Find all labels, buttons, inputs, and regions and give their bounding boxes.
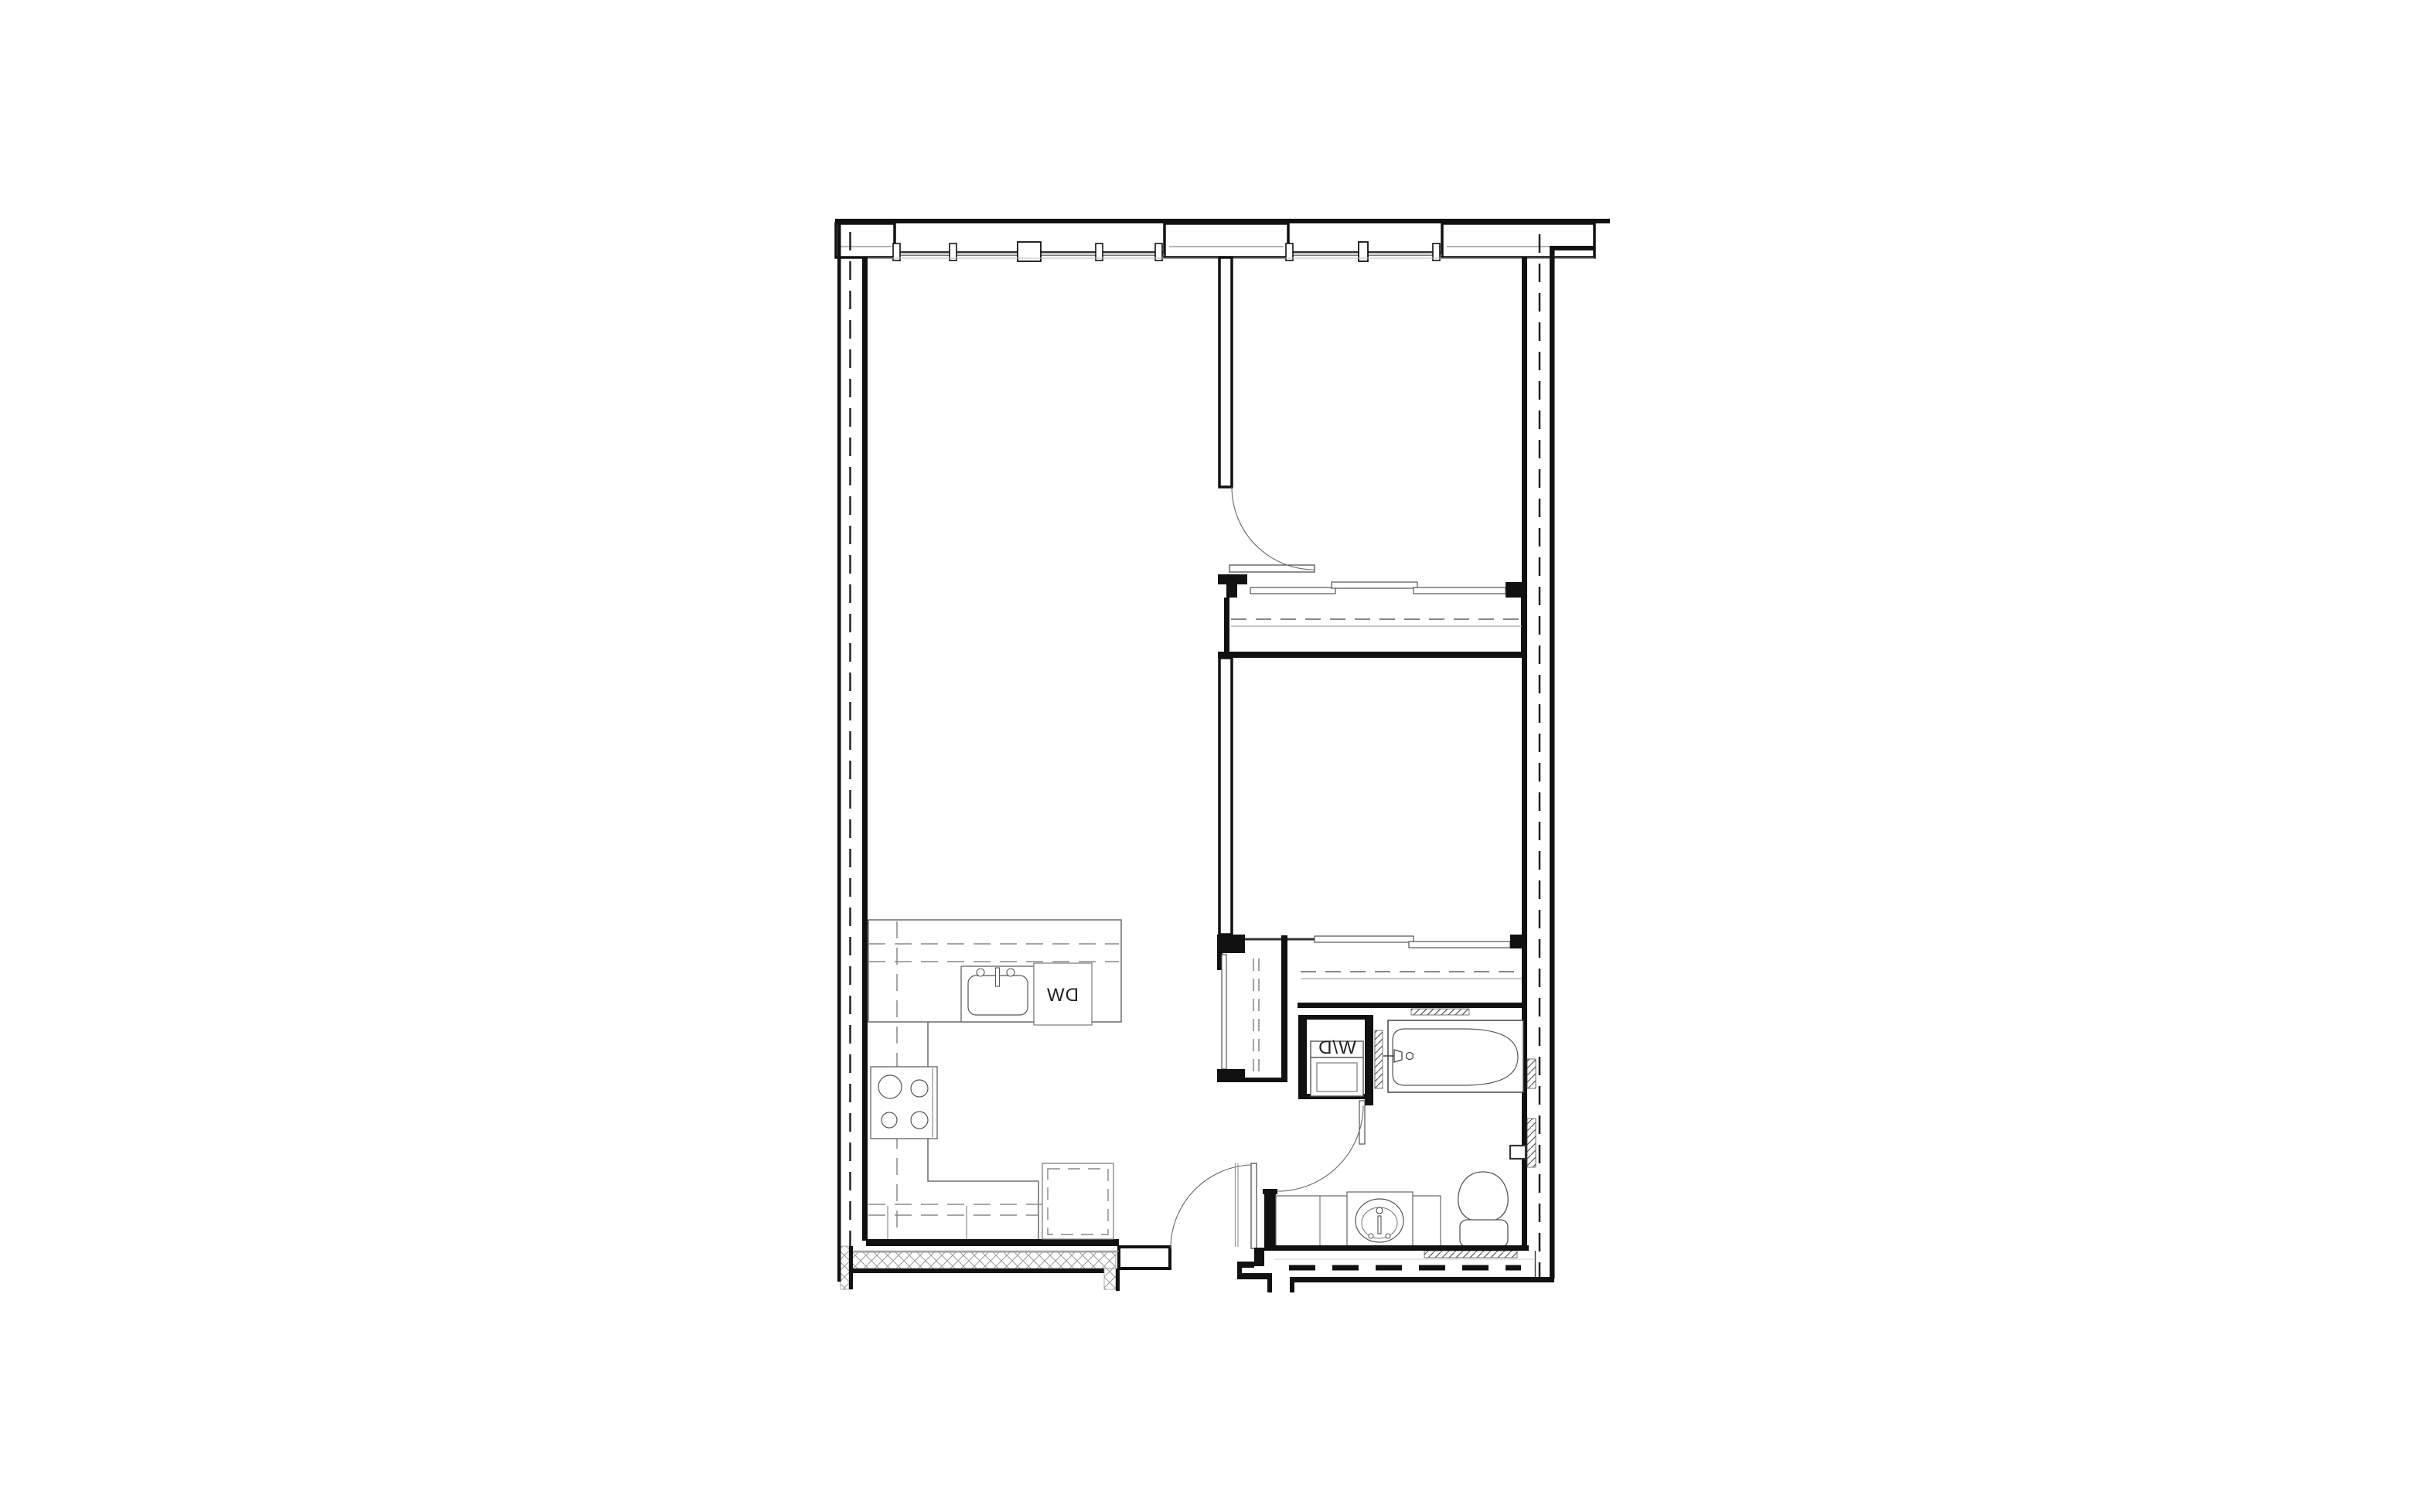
sliding-door-panel xyxy=(1409,942,1510,948)
sliding-door-panel xyxy=(1250,587,1335,594)
wall-hatch xyxy=(1375,1030,1383,1088)
wall-hatch xyxy=(1424,1251,1517,1258)
door-swing-arc-icon xyxy=(1171,1165,1251,1248)
washer-dryer-closet: W/D xyxy=(1298,1015,1373,1105)
bottom-corridor-wall-left xyxy=(837,1239,1120,1291)
stove-burners-icon xyxy=(871,1067,937,1139)
sliding-door-panel xyxy=(1414,587,1506,594)
sliding-door-panel xyxy=(1315,936,1414,942)
left-demising-wall xyxy=(837,223,868,1282)
right-demising-wall xyxy=(1522,234,1555,1279)
bedroom-door xyxy=(1229,487,1315,572)
entry-closet xyxy=(1217,935,1287,1082)
bedroom-hall-wall xyxy=(1219,658,1232,935)
dishwasher-label: DW xyxy=(1046,985,1079,1006)
closet-door-panel xyxy=(1222,955,1226,1069)
stacked-washer-dryer-icon: W/D xyxy=(1311,1037,1363,1096)
entry-jamb-wall xyxy=(1119,1247,1170,1269)
bedroom-closet xyxy=(1218,574,1527,658)
tub-faucet-icon xyxy=(1394,1050,1402,1062)
bottom-corridor-wall-right xyxy=(1289,1268,1554,1292)
wall-hatch xyxy=(1411,1009,1469,1015)
door-swing-arc-icon xyxy=(1277,1105,1363,1191)
wall-pier-left xyxy=(836,223,895,257)
wall-hatch xyxy=(1527,1119,1536,1167)
wall-pier-right xyxy=(1442,223,1594,257)
entry-step-wall xyxy=(1237,1248,1272,1292)
toilet-icon xyxy=(1458,1172,1508,1247)
washer-dryer-label: W/D xyxy=(1318,1037,1356,1058)
kitchen-sink-icon xyxy=(961,966,1034,1022)
dishwasher: DW xyxy=(1034,963,1092,1025)
top-exterior-wall xyxy=(835,219,1610,261)
bathtub-icon xyxy=(1383,1020,1523,1092)
entry-door xyxy=(1171,1163,1257,1248)
bathroom-sink-icon xyxy=(1356,1199,1403,1242)
door-leaf xyxy=(1359,1101,1365,1144)
wall-hatch xyxy=(1527,1059,1536,1088)
door-leaf xyxy=(1251,1163,1257,1248)
entry xyxy=(1119,1163,1272,1292)
sliding-door-panel xyxy=(1332,582,1417,588)
insulation-hatch-band xyxy=(851,1252,1116,1269)
sink-faucet-icon xyxy=(996,968,1000,986)
floor-plan-page: W/D xyxy=(0,0,2411,1512)
wall-pier-center xyxy=(1165,223,1288,257)
bathroom-door xyxy=(1277,1101,1365,1191)
refrigerator-icon xyxy=(1042,1163,1113,1239)
neighbor-wall-stub xyxy=(1550,246,1594,250)
door-swing-arc-icon xyxy=(1232,487,1315,570)
bathroom-sink-vanity xyxy=(1276,1192,1441,1250)
kitchen: DW xyxy=(868,920,1121,1239)
wall-accessory-box xyxy=(1510,1146,1526,1159)
kitchen-counter-edge xyxy=(928,1022,1038,1239)
floor-plan-drawing: W/D xyxy=(0,0,2411,1512)
hall-closet xyxy=(1217,935,1527,1008)
